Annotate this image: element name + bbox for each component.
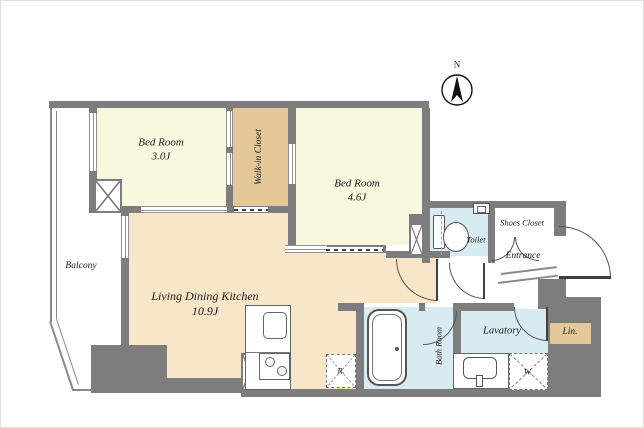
entrance-label: Entrance: [506, 251, 541, 263]
lavatory-name: Lavatory: [483, 324, 521, 337]
cabinet-detail: [477, 206, 486, 213]
wall: [91, 345, 167, 393]
bathtub-drain-icon: [395, 347, 399, 351]
wall: [241, 389, 601, 397]
bedroom2-label: Bed Room 4.6J: [334, 177, 380, 205]
north-label: N: [454, 59, 461, 70]
wall: [49, 101, 429, 108]
toilet-door-leaf: [483, 263, 485, 299]
bath-label: Bath Room: [434, 327, 445, 365]
balcony-name: Balcony: [65, 261, 96, 273]
pipe-shaft-icon: [409, 223, 424, 256]
bedroom1-label: Bed Room 3.0J: [138, 136, 184, 164]
toilet-door-arc: [449, 263, 485, 299]
bedroom1-sliding-door: [141, 206, 227, 213]
linen-label: Lin.: [562, 327, 577, 339]
north-arrow-icon: [439, 71, 475, 107]
entrance-door-leaf: [559, 276, 611, 279]
closet-sliding-door: [288, 144, 296, 184]
entrance-name: Entrance: [506, 251, 541, 263]
closet-sliding-door: [226, 111, 233, 147]
wall: [593, 317, 601, 349]
bathtub-icon: [367, 309, 407, 386]
toilet-bowl-icon: [443, 222, 469, 252]
wall: [356, 303, 364, 391]
balcony-edge-diagonal: [49, 321, 74, 391]
shoes-closet-name: Shoes Closet: [500, 218, 544, 229]
burner-icon: [265, 357, 275, 367]
window: [121, 216, 129, 258]
ldk-label: Living Dining Kitchen 10.9J: [151, 289, 258, 319]
toilet-label: Toilet: [466, 235, 485, 246]
toilet-cabinet-icon: [473, 203, 490, 214]
floor-plan: N Bed Room 3.0J Walk-in Closet Bed Room …: [0, 0, 644, 428]
balcony-edge: [50, 108, 52, 322]
refrigerator-name: R.: [337, 366, 344, 377]
burner-icon: [277, 366, 287, 376]
wall: [457, 303, 514, 311]
refrigerator-label: R.: [337, 366, 344, 377]
wall: [422, 201, 566, 208]
bedroom2-opening-dashed: [326, 247, 383, 252]
pipe-shaft-icon: [94, 179, 122, 213]
washer-label: W.: [524, 367, 532, 378]
shoes-closet-label: Shoes Closet: [500, 218, 544, 229]
toilet-door-track: [441, 211, 443, 255]
walk-in-closet-label: Walk-in Closet: [254, 129, 266, 185]
bedroom2-name: Bed Room: [334, 177, 380, 191]
toilet-name: Toilet: [466, 235, 485, 246]
washer-name: W.: [524, 367, 532, 378]
balcony-edge: [56, 111, 57, 319]
ldk-name: Living Dining Kitchen: [151, 289, 258, 304]
linen-name: Lin.: [562, 327, 577, 339]
balcony-edge: [72, 389, 93, 391]
window: [89, 113, 97, 171]
bedroom2-sliding-door: [285, 245, 327, 253]
room-ldk: [128, 213, 166, 345]
bath-name: Bath Room: [434, 327, 445, 365]
ldk-area: 10.9J: [151, 304, 258, 319]
entrance-step-line: [501, 266, 557, 275]
walk-in-closet-name: Walk-in Closet: [254, 129, 266, 185]
kitchen-sink-icon: [263, 312, 287, 339]
wall: [409, 214, 424, 223]
bedroom1-area: 3.0J: [138, 150, 184, 164]
bedroom2-area: 4.6J: [334, 191, 380, 205]
wall: [419, 303, 425, 311]
wall: [338, 303, 358, 311]
closet-opening-dashed: [234, 207, 268, 212]
ldk-door-leaf: [436, 259, 438, 301]
balcony-label: Balcony: [65, 261, 96, 273]
entrance-door-arc: [559, 226, 611, 278]
basin-faucet-icon: [476, 375, 483, 387]
wall: [167, 378, 243, 393]
bedroom1-name: Bed Room: [138, 136, 184, 150]
closet-sliding-door: [226, 153, 233, 185]
lavatory-label: Lavatory: [483, 324, 521, 337]
north-label-text: N: [454, 59, 461, 70]
